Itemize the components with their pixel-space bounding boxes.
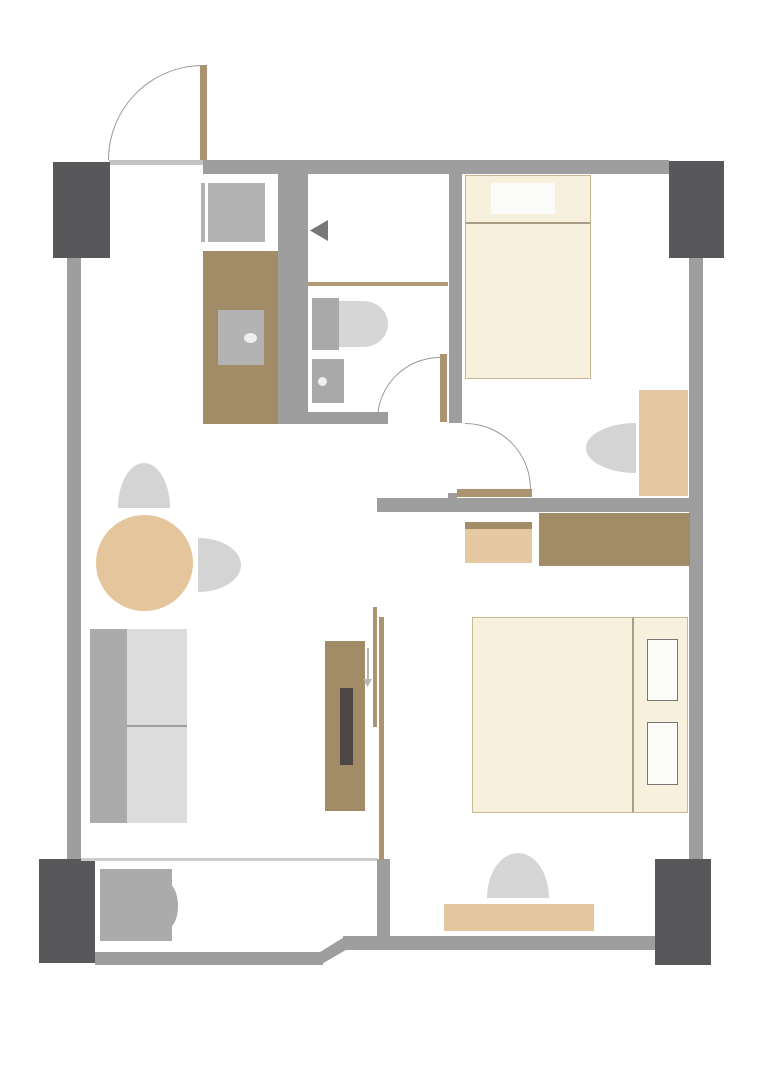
- dresser: [539, 513, 690, 566]
- single-bed-pillow: [491, 183, 555, 214]
- top-wall: [203, 160, 669, 174]
- pillar-top-right: [669, 161, 724, 258]
- bathroom-sink: [312, 359, 344, 403]
- tv-screen: [340, 688, 353, 765]
- kitchen-appliance: [208, 183, 265, 242]
- bed-bench: [444, 904, 594, 931]
- wall-step-diagonal: [320, 936, 346, 965]
- nightstand-top-strip: [465, 522, 532, 529]
- dining-chair-right: [198, 538, 241, 592]
- toilet-tank: [312, 298, 339, 350]
- bathroom-door-leaf: [440, 354, 447, 422]
- bathroom-sink-dot: [318, 377, 327, 386]
- kitchen-sink: [218, 310, 264, 365]
- pillar-top-left: [53, 162, 110, 258]
- pillar-bottom-right: [655, 859, 711, 965]
- partition-rail-short: [373, 607, 377, 727]
- bed-pillow-2: [647, 722, 678, 785]
- sofa-back: [90, 629, 127, 823]
- dining-table: [96, 515, 193, 611]
- shower-arrow-icon: [310, 220, 328, 241]
- bedroom-door-arc: [465, 423, 531, 489]
- bedroom-door-leaf: [457, 489, 532, 497]
- balcony-divider-wall: [377, 859, 390, 950]
- slide-arrow-line: [367, 648, 369, 680]
- middle-wall: [377, 498, 703, 512]
- left-wall: [67, 258, 81, 860]
- balcony-unit-bump: [168, 884, 178, 928]
- balcony-south-wall: [95, 952, 323, 965]
- desk-chair: [586, 423, 636, 473]
- balcony-window-line: [81, 858, 377, 861]
- nightstand: [465, 529, 532, 563]
- floor-plan: [0, 0, 763, 1080]
- dining-chair-top: [118, 463, 170, 508]
- double-bed-line: [632, 618, 634, 812]
- toilet-bowl: [339, 301, 388, 347]
- bed-stool: [487, 853, 549, 898]
- sofa-seat-line: [127, 725, 187, 727]
- pillar-bottom-left: [39, 859, 95, 963]
- balcony-unit: [100, 869, 172, 941]
- partition-rail-long: [379, 617, 384, 860]
- bathroom-divider-line: [308, 282, 448, 286]
- bathroom-door-arc: [377, 357, 440, 420]
- bed-pillow-1: [647, 639, 678, 701]
- bathroom-south-wall: [308, 412, 388, 424]
- bedroom-divider-wall: [449, 173, 462, 423]
- entry-door-arc: [108, 65, 203, 160]
- single-bed-line: [466, 222, 590, 224]
- entry-threshold-line: [109, 160, 203, 165]
- right-wall: [689, 258, 703, 859]
- bathroom-west-wall: [278, 173, 308, 424]
- middle-wall-nub: [448, 493, 457, 499]
- desk: [639, 390, 688, 496]
- entry-door-leaf: [200, 65, 207, 160]
- kitchen-sink-dot: [244, 333, 257, 343]
- kitchen-appliance-line: [201, 183, 205, 242]
